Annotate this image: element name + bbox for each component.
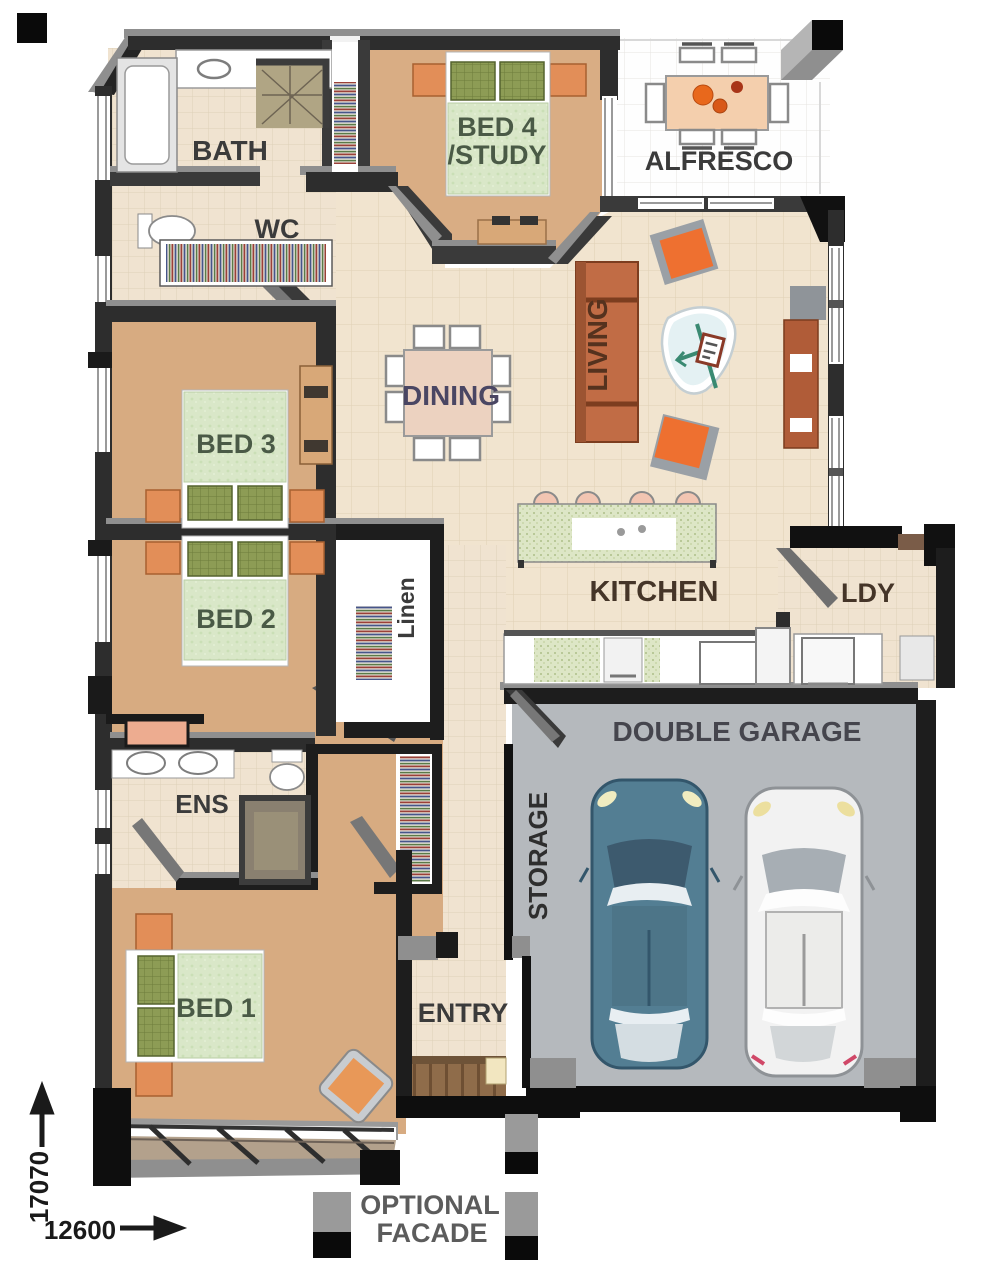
svg-text:17070: 17070	[24, 1151, 54, 1223]
svg-text:FACADE: FACADE	[376, 1218, 487, 1248]
svg-text:BED 1: BED 1	[176, 993, 256, 1023]
svg-text:BED 3: BED 3	[196, 429, 276, 459]
svg-text:WC: WC	[255, 214, 300, 244]
svg-text:LIVING: LIVING	[582, 298, 613, 391]
svg-text:BED 2: BED 2	[196, 604, 276, 634]
svg-text:ALFRESCO: ALFRESCO	[645, 146, 794, 176]
svg-text:Linen: Linen	[393, 577, 419, 638]
svg-text:KITCHEN: KITCHEN	[590, 576, 719, 608]
svg-text:ENTRY: ENTRY	[418, 998, 509, 1028]
svg-text:BED 4: BED 4	[457, 112, 537, 142]
svg-text:BATH: BATH	[192, 135, 268, 166]
svg-text:DOUBLE GARAGE: DOUBLE GARAGE	[613, 716, 862, 747]
svg-text:ENS: ENS	[175, 789, 228, 819]
svg-text:STORAGE: STORAGE	[523, 792, 553, 920]
svg-text:/STUDY: /STUDY	[447, 140, 546, 170]
svg-text:DINING: DINING	[402, 380, 500, 411]
svg-text:OPTIONAL: OPTIONAL	[360, 1190, 500, 1220]
svg-text:LDY: LDY	[841, 578, 895, 608]
svg-text:12600: 12600	[44, 1215, 116, 1245]
